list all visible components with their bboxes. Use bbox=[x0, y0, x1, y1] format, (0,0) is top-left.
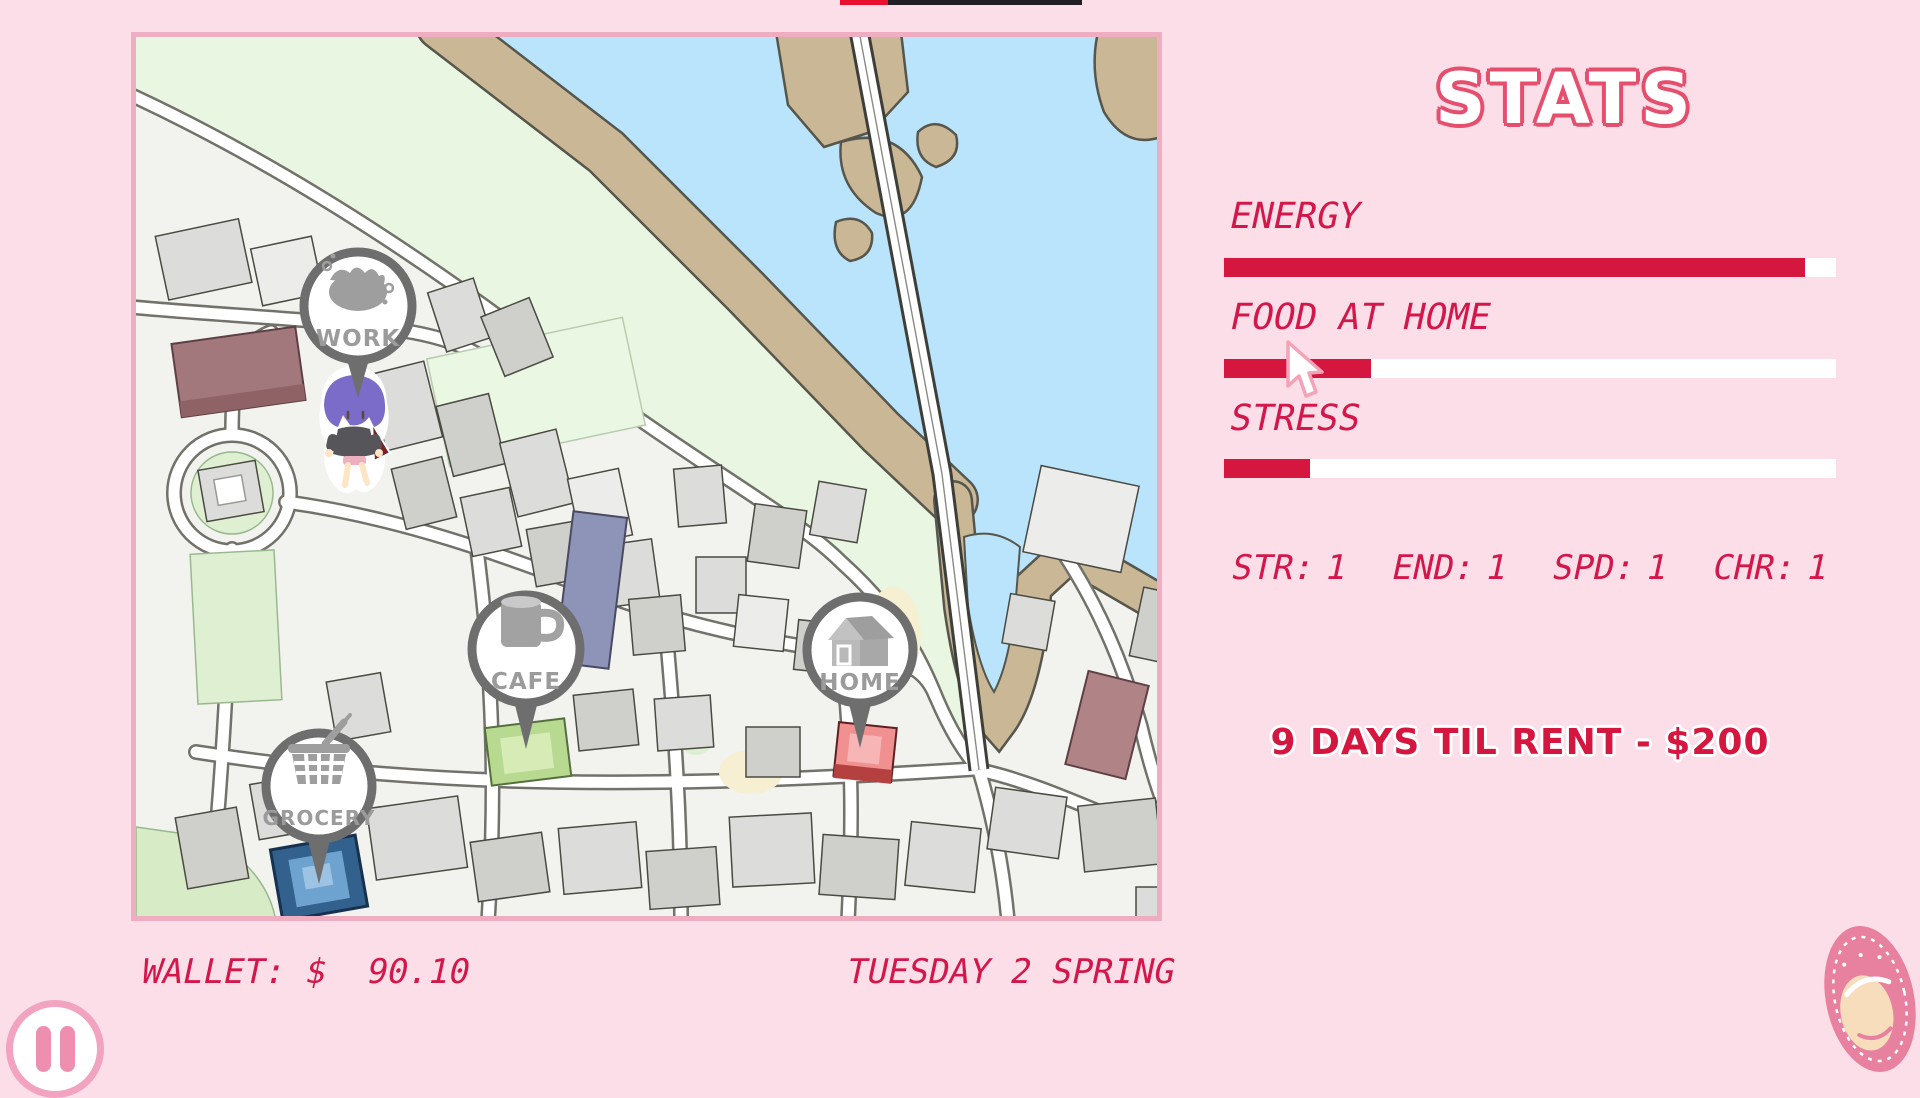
stats-title: STATS bbox=[1400, 58, 1730, 140]
energy-bar-fill bbox=[1224, 258, 1805, 277]
attr-chr-label: CHR: bbox=[1709, 548, 1799, 588]
attributes-row: STR:1 END:1 SPD:1 CHR:1 bbox=[1228, 548, 1832, 588]
city-map: WORK CAFE GROCERY bbox=[136, 37, 1157, 916]
home-building bbox=[833, 722, 897, 784]
stress-bar bbox=[1224, 459, 1836, 478]
pause-button[interactable] bbox=[6, 1000, 104, 1098]
game-screen: { "theme": { "background": "#fcdee8", "a… bbox=[0, 0, 1920, 1080]
food-label: FOOD AT HOME bbox=[1226, 297, 1495, 338]
attr-end-label: END: bbox=[1388, 548, 1478, 588]
roundabout-building bbox=[198, 460, 264, 521]
attr-str: STR:1 bbox=[1228, 548, 1351, 588]
attr-chr-value: 1 bbox=[1803, 548, 1832, 588]
mouse-cursor bbox=[1284, 340, 1336, 402]
date-display: TUESDAY 2 SPRING bbox=[843, 952, 1179, 992]
attr-spd-label: SPD: bbox=[1549, 548, 1639, 588]
grocery-label: GROCERY bbox=[263, 806, 376, 830]
cafe-label: CAFE bbox=[491, 669, 561, 695]
top-progress-dark bbox=[888, 0, 1082, 5]
attr-end: END:1 bbox=[1388, 548, 1511, 588]
attr-str-label: STR: bbox=[1228, 548, 1318, 588]
attr-str-value: 1 bbox=[1322, 548, 1351, 588]
maroon-building bbox=[171, 327, 305, 418]
home-label: HOME bbox=[819, 670, 900, 696]
stress-bar-fill bbox=[1224, 459, 1310, 478]
top-progress-red bbox=[840, 0, 888, 5]
energy-bar bbox=[1224, 258, 1836, 277]
attr-spd-value: 1 bbox=[1643, 548, 1672, 588]
pause-icon bbox=[60, 1026, 75, 1072]
city-map-panel: WORK CAFE GROCERY bbox=[131, 32, 1162, 921]
attr-spd: SPD:1 bbox=[1549, 548, 1672, 588]
wallet-display: WALLET: $ 90.10 bbox=[138, 952, 474, 992]
energy-label: ENERGY bbox=[1226, 196, 1365, 237]
logo-stamp bbox=[1818, 920, 1920, 1078]
attr-chr: CHR:1 bbox=[1709, 548, 1832, 588]
stress-label: STRESS bbox=[1226, 398, 1365, 439]
pause-icon bbox=[36, 1026, 51, 1072]
attr-end-value: 1 bbox=[1482, 548, 1511, 588]
rent-notice: 9 DAYS TIL RENT - $200 bbox=[1200, 722, 1840, 763]
work-label: WORK bbox=[316, 326, 401, 352]
